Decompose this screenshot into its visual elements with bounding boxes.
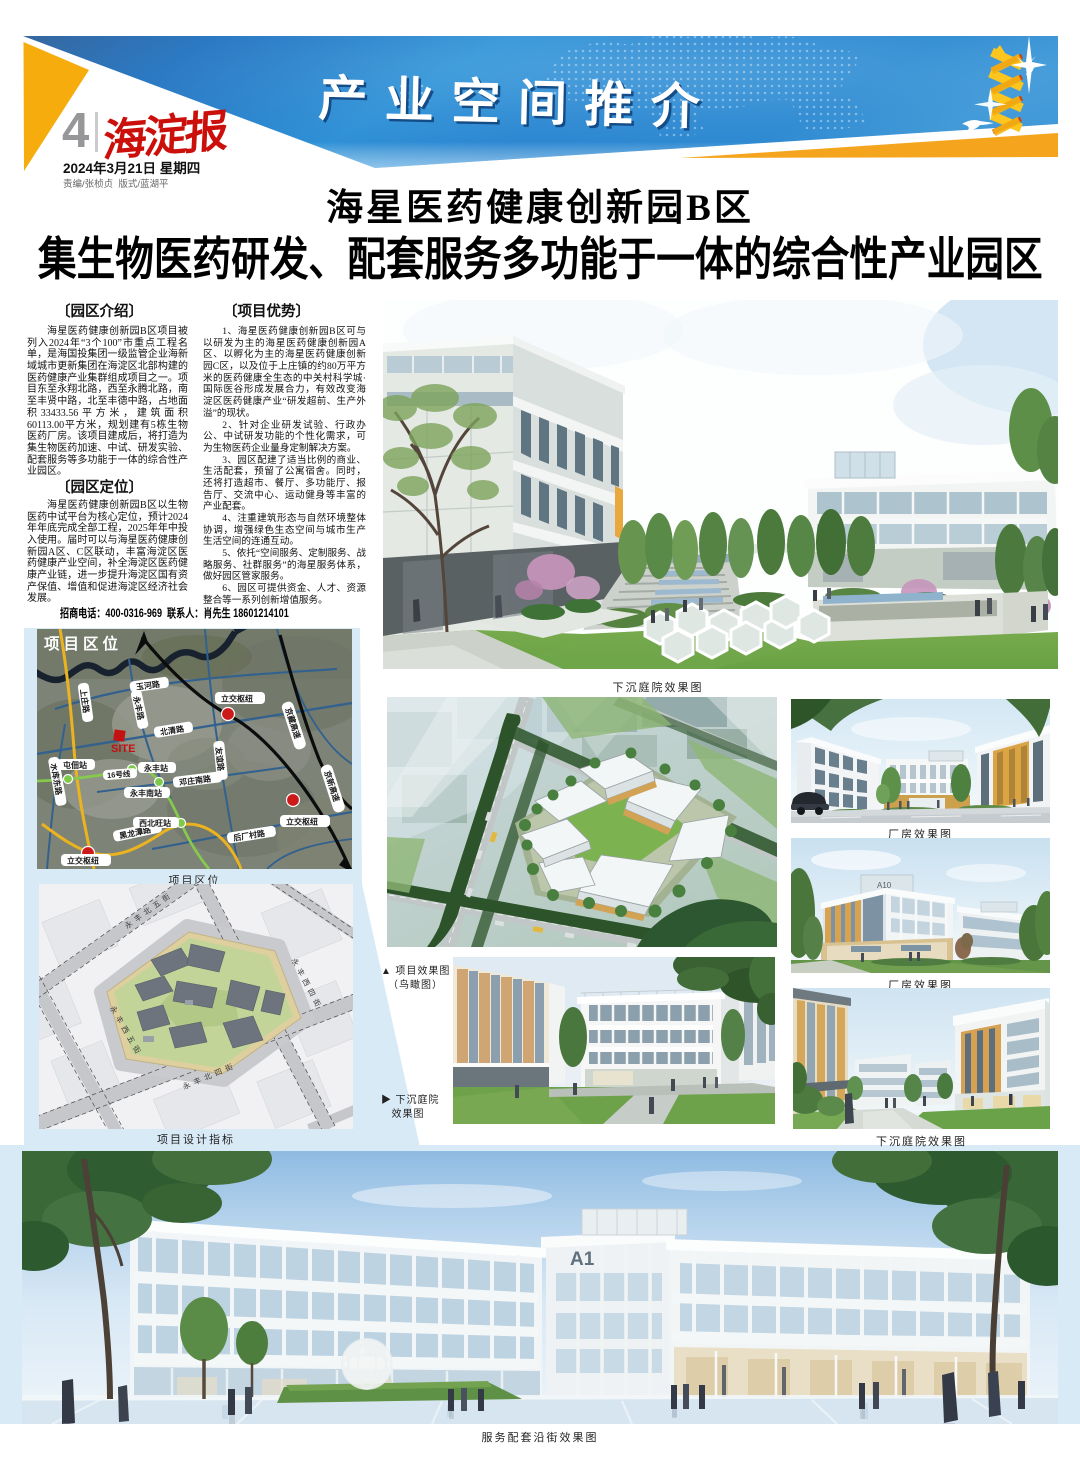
svg-text:产业空间推介: 产业空间推介: [318, 72, 718, 135]
svg-text:立交枢纽: 立交枢纽: [67, 856, 99, 866]
svg-text:立交枢纽: 立交枢纽: [221, 694, 253, 704]
svg-text:西北旺站: 西北旺站: [139, 818, 171, 828]
svg-text:SITE: SITE: [111, 743, 135, 755]
svg-text:屯佃站: 屯佃站: [63, 760, 87, 770]
svg-text:永丰南站: 永丰南站: [129, 788, 162, 798]
svg-text:项目区位: 项目区位: [44, 634, 122, 653]
svg-text:A1: A1: [570, 1249, 595, 1270]
svg-text:永丰站: 永丰站: [143, 763, 168, 773]
svg-text:立交枢纽: 立交枢纽: [286, 817, 318, 827]
svg-text:16号线: 16号线: [107, 768, 131, 780]
